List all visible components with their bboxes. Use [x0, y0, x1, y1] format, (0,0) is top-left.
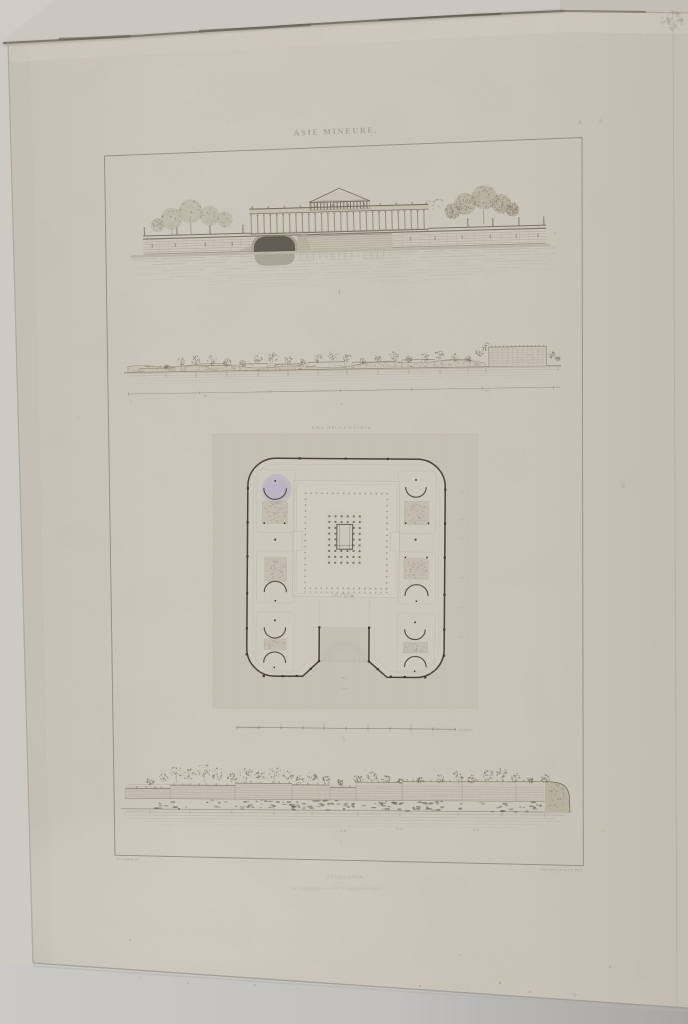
- svg-text:E. Landron del.: E. Landron del.: [117, 857, 140, 861]
- svg-text:50 Mètres: 50 Mètres: [459, 728, 473, 732]
- svg-text:1.: 1.: [338, 290, 343, 296]
- svg-text:30 m: 30 m: [473, 828, 480, 832]
- svg-text:3.: 3.: [342, 738, 346, 743]
- svg-text:4.: 4.: [578, 119, 583, 126]
- svg-text:15 m: 15 m: [396, 827, 403, 831]
- svg-text:4.: 4.: [339, 839, 342, 844]
- svg-text:2.: 2.: [340, 402, 344, 407]
- svg-text:100: 100: [484, 389, 489, 393]
- svg-text:P. m: P. m: [342, 686, 348, 690]
- svg-text:APOLLONIA: APOLLONIA: [326, 875, 363, 881]
- svg-text:P. n: P. n: [342, 676, 347, 680]
- svg-text:22 m: 22 m: [340, 828, 347, 832]
- svg-text:2: 2: [130, 399, 132, 404]
- svg-text:50: 50: [203, 394, 207, 398]
- svg-text:4.: 4.: [599, 118, 604, 125]
- svg-text:LAC APOLLONIATE: LAC APOLLONIATE: [312, 426, 372, 431]
- svg-text:(lac Apolloniate) — Vue de l'e: (lac Apolloniate) — Vue de l'enceinte an…: [291, 886, 381, 891]
